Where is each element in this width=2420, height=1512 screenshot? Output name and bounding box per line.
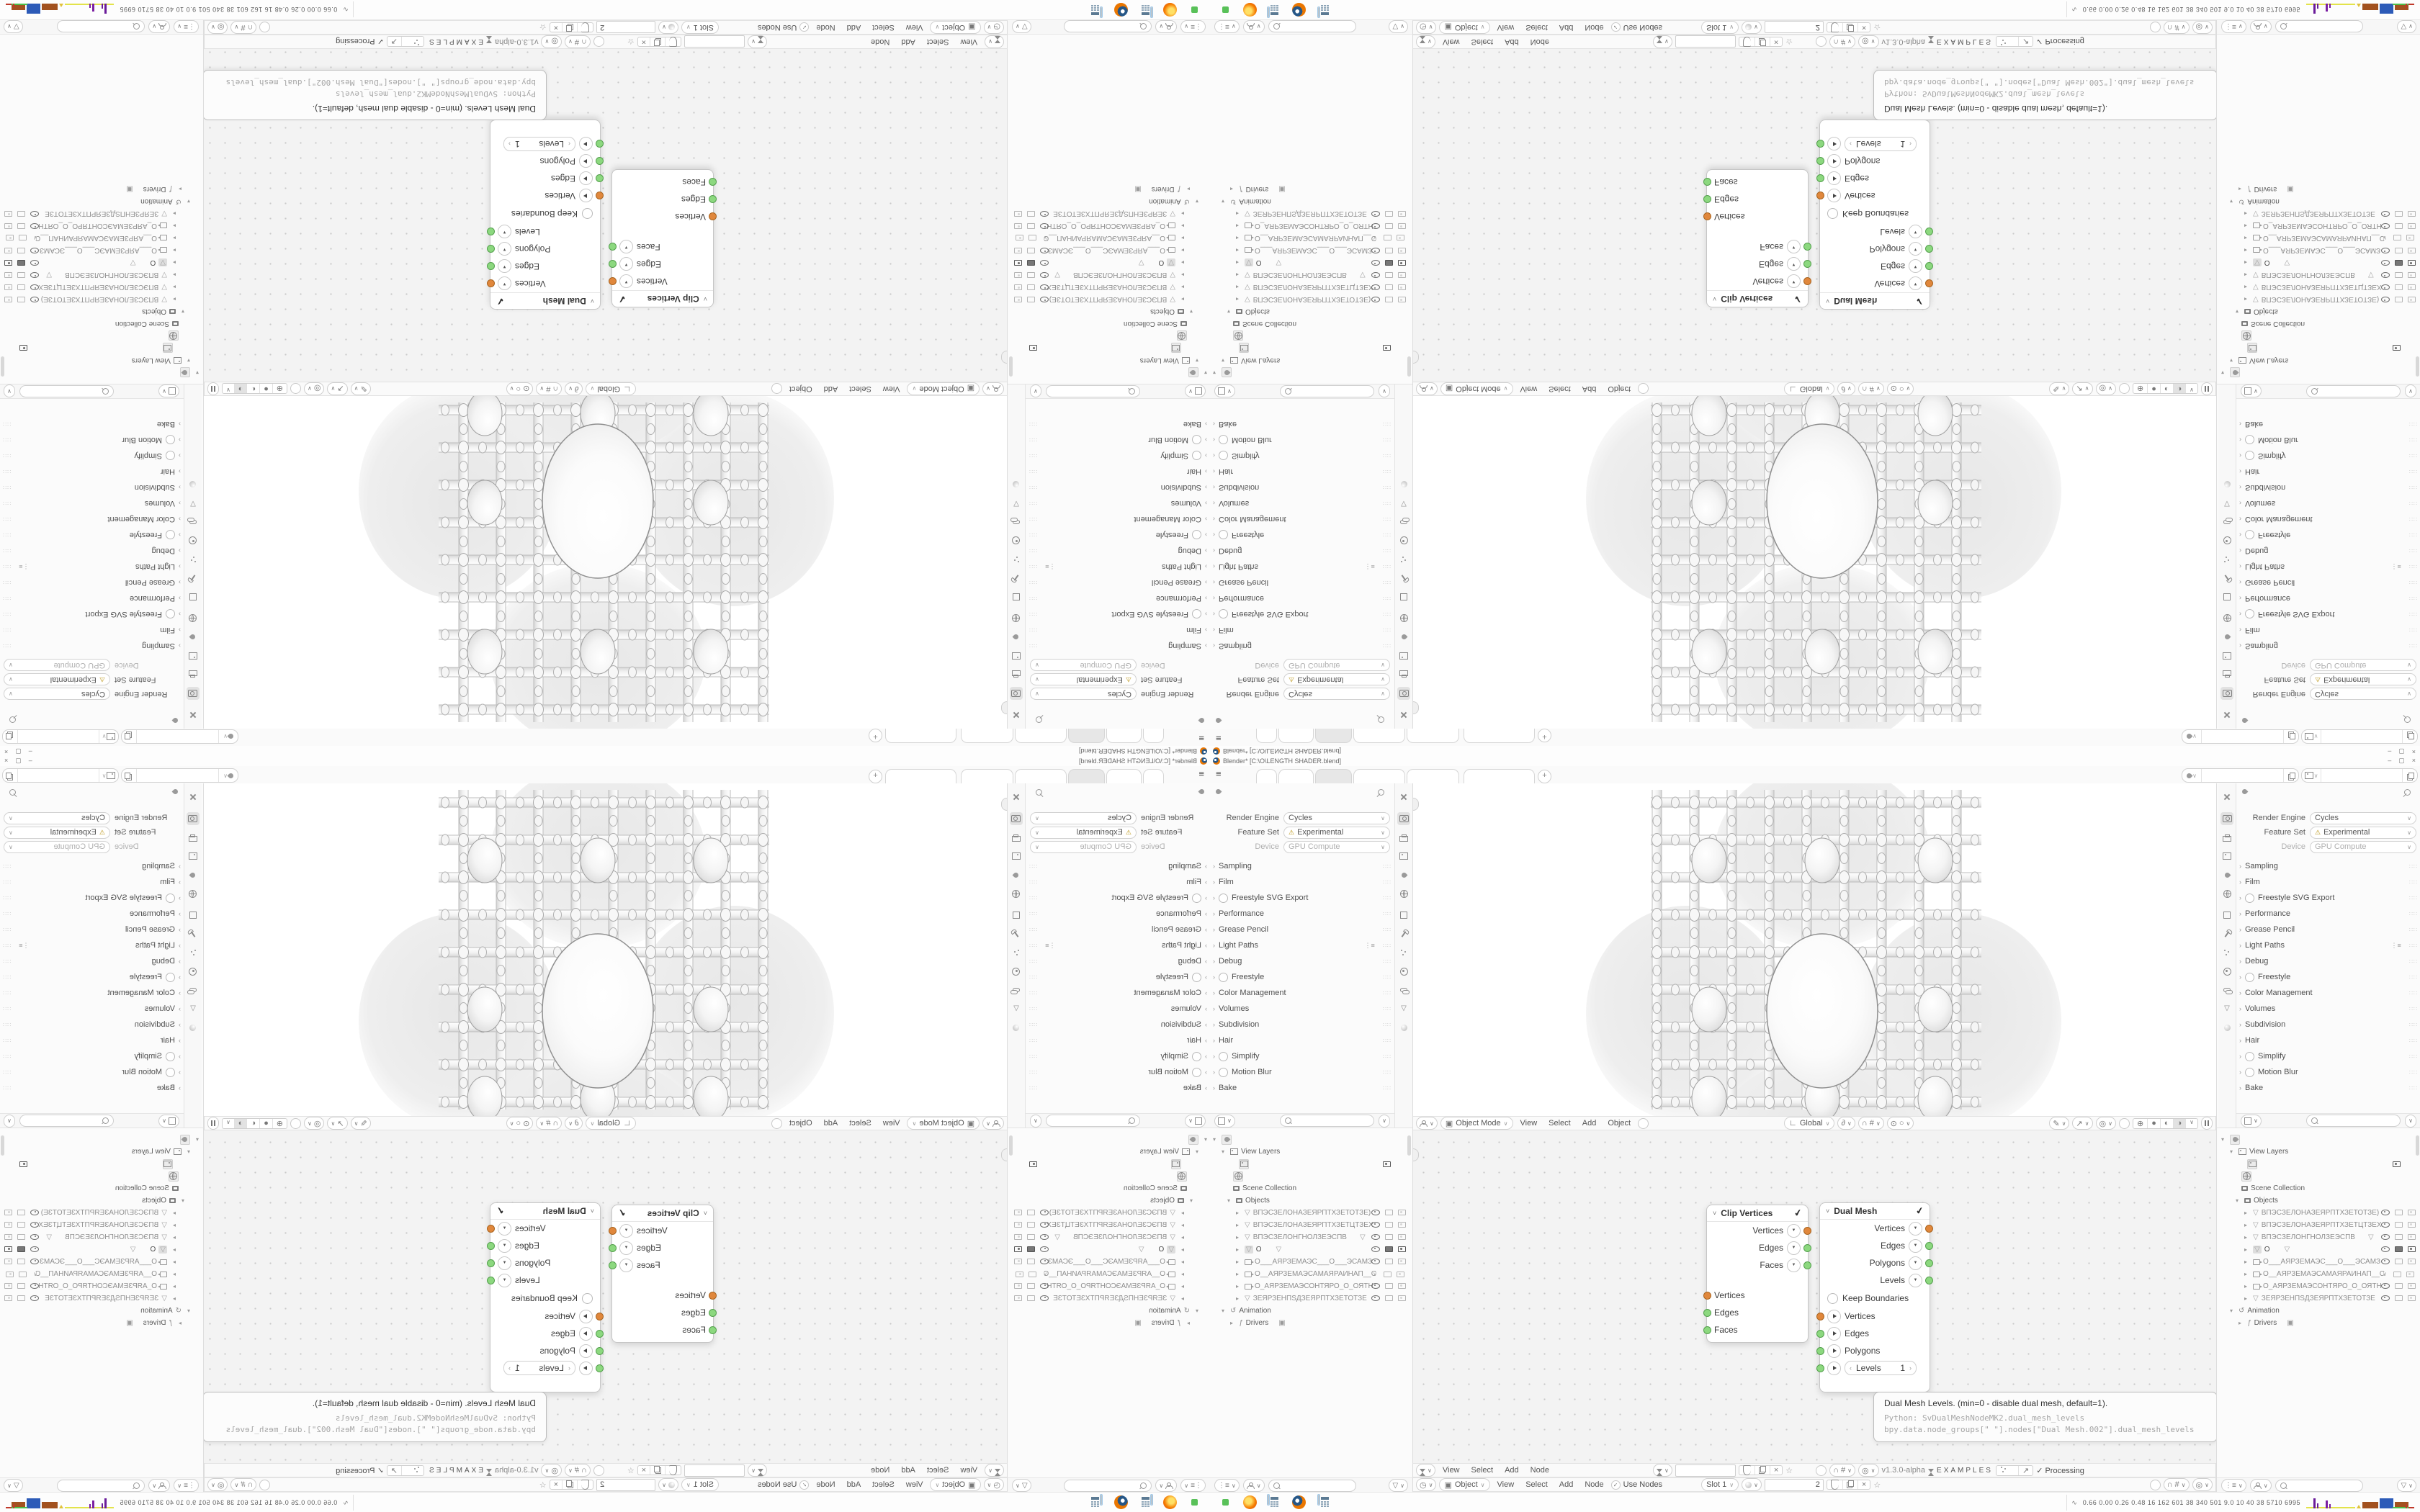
tab-render-icon[interactable] [187, 687, 200, 700]
preset-icon[interactable]: ⋮≡ [1045, 563, 1055, 571]
section-motion-blur[interactable]: ›Motion Blur∷∷ [1028, 1066, 1207, 1079]
tab-physics-icon[interactable] [2220, 965, 2233, 978]
input-socket-levels[interactable] [596, 1364, 604, 1372]
viewport-toggle-icon[interactable] [1385, 223, 1393, 229]
drag-grip-icon[interactable]: ∷∷ [2, 1085, 11, 1092]
object-row[interactable]: ▸▽ЗЕЯРЗЕНПЅДЗЕЯРПТХЗЕТОТЗЕ [2244, 208, 2375, 219]
editor-type-button[interactable]: ◷∨ [1416, 21, 1436, 34]
objects-collection-row[interactable]: ▾Objects [1150, 306, 1193, 317]
viewport-toggle-icon[interactable] [2395, 284, 2403, 290]
workspace-tab-5[interactable] [961, 729, 1013, 743]
animation-row[interactable]: ▾↺Animation [140, 1305, 190, 1316]
sidebar-handle[interactable] [1001, 1148, 1007, 1161]
checkbox[interactable] [2245, 1052, 2254, 1061]
overlap-button[interactable]: ◎∨ [2192, 1478, 2213, 1491]
render-toggle-icon[interactable] [1398, 223, 1406, 229]
copy-button[interactable] [650, 37, 665, 46]
cursor-button[interactable]: ↗ [2019, 37, 2033, 47]
object-row[interactable]: ▸▽ВПЭСЗЕЛОНАЗЕЯРПТХЗЕТОТЗЕ) [1236, 1207, 1371, 1218]
viewport-3d[interactable] [1412, 396, 2218, 729]
socket-menu-button[interactable]: ▼ [1787, 240, 1801, 254]
checkbox[interactable] [1219, 531, 1228, 540]
filter-type-dropdown[interactable]: ∨ [1243, 1479, 1265, 1492]
eye-closed-icon[interactable]: ∨ [1371, 1271, 1379, 1277]
workspace-tab-1[interactable] [1256, 769, 1277, 783]
section-freestyle[interactable]: ›Freestyle∷∷ [1028, 528, 1207, 541]
annotation-circle-button[interactable] [771, 1118, 782, 1129]
unlink-button[interactable]: × [1770, 37, 1782, 46]
section-performance[interactable]: ›Performance∷∷ [2239, 907, 2418, 920]
tab-data-icon[interactable]: ▽ [2220, 497, 2233, 510]
scene-collection-row[interactable]: Scene Collection [1233, 1183, 1296, 1194]
copy-icon[interactable] [126, 773, 132, 779]
material-preview-button[interactable]: ∨ [1742, 21, 1762, 34]
drag-grip-icon[interactable]: ∷∷ [1028, 990, 1037, 996]
render-toggle-icon[interactable] [1014, 1234, 1022, 1240]
input-socket-faces[interactable] [709, 178, 717, 186]
objects-collection-row[interactable]: ▾Objects [2236, 1195, 2278, 1206]
object-row[interactable]: ▸▽ВПЭСЗЕЛОНГНОЛЗЕЭСПВ▽ [46, 1232, 176, 1243]
overlays-button[interactable]: ◎∨ [2096, 382, 2116, 395]
viewport-toggle-icon[interactable] [1384, 235, 1391, 241]
drag-grip-icon[interactable]: ∷∷ [2409, 643, 2418, 649]
xray-circle-button[interactable] [2119, 384, 2130, 395]
display-mode-dropdown[interactable]: ⋮≡∨ [1214, 1479, 1240, 1492]
menu-select[interactable]: Select [845, 1119, 876, 1128]
outliner-search-input[interactable] [1064, 1480, 1152, 1492]
object-row[interactable]: ▸▽ВПЭСЗЕЛОНАЗЕЯРПТХЗЕТЦТЗЕХ [2244, 1220, 2382, 1230]
filter-button[interactable]: ▽∨ [1389, 1479, 1408, 1492]
pin-star-icon[interactable]: ☆ [627, 37, 635, 47]
viewport-toggle-icon[interactable] [1027, 1246, 1035, 1252]
section-film[interactable]: ›Film∷∷ [2239, 876, 2418, 888]
window-titlebar[interactable]: Blender* [C:\O\LENGTH SHADER.blend] – ▢ … [0, 756, 1210, 766]
viewport-toggle-icon[interactable] [2395, 1234, 2403, 1240]
checkbox[interactable] [1219, 1068, 1228, 1077]
editor-type-button[interactable]: ∨ [1416, 1464, 1435, 1477]
calculator-icon-2[interactable] [1101, 1495, 1102, 1505]
drag-grip-icon[interactable]: ∷∷ [1028, 942, 1037, 949]
shading-solid-button[interactable]: ● [2148, 384, 2161, 394]
world-row[interactable] [1177, 1171, 1187, 1182]
drag-grip-icon[interactable]: ∷∷ [2409, 1085, 2418, 1092]
viewport-toggle-icon[interactable] [1027, 1234, 1035, 1240]
section-film[interactable]: ›Film∷∷ [2, 624, 181, 636]
section-performance[interactable]: ›Performance∷∷ [1028, 592, 1207, 605]
feature-set-dropdown[interactable]: ⚠Experimental∨ [1030, 674, 1137, 686]
checkbox[interactable] [1192, 1068, 1201, 1077]
node-header[interactable]: ˅Clip Vertices✔ [1707, 1205, 1808, 1222]
object-row[interactable]: ▸О__АЯРЗЕМАЭСАМАЯРАИНАП__С [35, 233, 176, 243]
eye-toggle-icon[interactable] [2381, 1246, 2390, 1252]
viewport-toggle-icon[interactable] [17, 1259, 25, 1264]
checkbox[interactable] [1192, 1052, 1201, 1061]
menu-object[interactable]: Object [785, 1119, 817, 1128]
workspace-tab-1[interactable] [1143, 769, 1164, 783]
workspace-tab-6[interactable] [885, 769, 956, 783]
tree-select-button[interactable]: ∨ [1653, 1464, 1672, 1477]
render-engine-dropdown[interactable]: Cycles∨ [4, 812, 110, 824]
world-row[interactable] [1177, 330, 1187, 341]
checkbox[interactable] [1219, 436, 1228, 445]
section-film[interactable]: ›Film∷∷ [2239, 624, 2418, 636]
input-socket-faces[interactable] [1703, 1326, 1711, 1334]
socket-menu-button[interactable]: ▼ [1909, 1274, 1922, 1287]
options-button[interactable]: ∨ [1379, 385, 1390, 398]
object-row[interactable]: ▸О__АЯРЗЕМАЭСАМАЯРАИНАП__С [1044, 233, 1184, 243]
mode-dropdown[interactable]: ▣Object Mode∨ [907, 1117, 980, 1130]
drag-grip-icon[interactable]: ∷∷ [1383, 453, 1391, 459]
filter-button[interactable]: ▽∨ [2397, 1479, 2416, 1492]
gizmo-button[interactable]: ↗∨ [2072, 382, 2092, 395]
tab-scene-icon[interactable] [2220, 631, 2233, 644]
viewport-toggle-icon[interactable] [17, 1246, 25, 1252]
node-clip-vertices[interactable]: ˅Clip Vertices✔ Vertices▼ Edges▼ Faces▼ … [611, 169, 714, 307]
shader-type-dropdown[interactable]: ▣Object∨ [930, 21, 980, 34]
section-sampling[interactable]: ›Sampling∷∷ [2, 860, 181, 873]
calculator-icon[interactable] [1151, 1495, 1152, 1505]
filter-type-dropdown[interactable]: ∨ [2250, 1479, 2272, 1492]
bake-button[interactable] [1996, 1466, 2019, 1475]
copy-icon[interactable] [2407, 734, 2413, 740]
overlap-button[interactable]: ◎∨ [542, 35, 562, 48]
section-freestyle[interactable]: ›Freestyle∷∷ [1028, 971, 1207, 984]
viewport-toggle-icon[interactable] [17, 248, 25, 253]
calculator-icon[interactable] [1268, 7, 1269, 17]
section-light-paths[interactable]: ›Light Paths⋮≡∷∷ [1028, 939, 1207, 952]
processing-check[interactable]: ✓ Processing [336, 37, 384, 47]
input-socket-vertices[interactable] [1816, 192, 1824, 199]
display-mode-button[interactable]: ∨ [158, 385, 179, 398]
drag-grip-icon[interactable]: ∷∷ [2, 548, 11, 554]
eye-toggle-icon[interactable] [30, 223, 39, 229]
circle-button[interactable] [1816, 1465, 1827, 1476]
drag-grip-icon[interactable]: ∷∷ [1383, 548, 1391, 554]
object-row[interactable]: ▸▽ВПЭСЗЕЛОНАЗЕЯРПТХЗЕТОТЗЕ) [1236, 294, 1371, 305]
levels-stepper[interactable]: ‹Levels1› [1845, 137, 1917, 151]
levels-stepper[interactable]: ‹Levels1› [503, 1361, 575, 1375]
pin-star-icon[interactable]: ☆ [539, 23, 547, 32]
socket-menu-button[interactable]: ▼ [1909, 260, 1922, 274]
socket-plug-button[interactable] [579, 1310, 593, 1323]
drag-grip-icon[interactable]: ∷∷ [1028, 453, 1037, 459]
render-toggle-icon[interactable] [4, 272, 12, 278]
render-engine-dropdown[interactable]: Cycles∨ [1030, 812, 1137, 824]
hamburger-menu-icon[interactable]: ≡ [1198, 768, 1204, 779]
viewport-toggle-icon[interactable] [19, 1272, 27, 1277]
input-socket-levels[interactable] [1816, 1364, 1824, 1372]
bake-button[interactable] [401, 37, 423, 47]
viewport-toggle-icon[interactable] [17, 1210, 25, 1215]
camera-toggle-icon[interactable] [1383, 345, 1391, 351]
filter-button[interactable]: ▽∨ [1012, 20, 1031, 33]
circle-button[interactable] [1816, 37, 1827, 48]
tab-output-icon[interactable] [1010, 668, 1023, 681]
tab-constraints-icon[interactable] [1397, 984, 1410, 996]
eye-toggle-icon[interactable] [1371, 223, 1380, 229]
snapping-button[interactable]: ∩#∨ [536, 382, 562, 395]
options-button[interactable]: ∨ [1030, 1115, 1041, 1128]
shader-type-dropdown[interactable]: ▣Object∨ [1439, 1478, 1489, 1491]
menu-add[interactable]: Add [1500, 1466, 1523, 1475]
circle-button[interactable] [259, 1480, 270, 1490]
section-freestyle-svg[interactable]: ›Freestyle SVG Export∷∷ [1028, 891, 1207, 904]
output-socket-edges[interactable] [1925, 262, 1933, 270]
hamburger-menu-icon[interactable]: ≡ [1216, 768, 1222, 779]
drag-grip-icon[interactable]: ∷∷ [2409, 895, 2418, 901]
output-socket-vertices[interactable] [609, 277, 617, 285]
section-grease-pencil[interactable]: ›Grease Pencil∷∷ [2, 923, 181, 936]
drag-grip-icon[interactable]: ∷∷ [1383, 974, 1391, 981]
tab-data-icon[interactable]: ▽ [1397, 1002, 1410, 1015]
viewport-toggle-icon[interactable] [17, 1222, 25, 1228]
filter-button[interactable]: ▽∨ [4, 1479, 23, 1492]
pin-star-icon[interactable]: ☆ [1785, 1466, 1793, 1475]
output-socket-levels[interactable] [487, 1277, 495, 1284]
snapping-button[interactable]: ∩#∨ [1858, 382, 1884, 395]
editor-type-button[interactable]: ∨ [985, 1464, 1004, 1477]
drag-grip-icon[interactable]: ∷∷ [1028, 911, 1037, 917]
viewport-toggle-icon[interactable] [17, 272, 25, 278]
menu-view[interactable]: View [1493, 1480, 1519, 1489]
menu-add[interactable]: Add [843, 1480, 866, 1489]
eye-toggle-icon[interactable] [1371, 297, 1380, 302]
firefox-icon[interactable] [1243, 1495, 1257, 1509]
preset-icon[interactable]: ⋮≡ [19, 563, 29, 571]
menu-node[interactable]: Node [1580, 23, 1608, 32]
eye-toggle-icon[interactable] [1371, 1259, 1380, 1264]
viewport-toggle-icon[interactable] [1027, 211, 1035, 217]
viewport-toggle-icon[interactable] [1027, 1295, 1035, 1301]
pin-icon[interactable] [9, 789, 16, 796]
shading-dropdown[interactable]: ∨ [223, 1119, 234, 1128]
render-toggle-icon[interactable] [1398, 248, 1406, 253]
shading-material-button[interactable]: ◐ [2161, 384, 2174, 394]
pin-star-icon[interactable]: ☆ [1873, 23, 1881, 32]
fake-user-shield-button[interactable] [665, 1466, 681, 1475]
drag-grip-icon[interactable]: ∷∷ [1028, 580, 1037, 586]
view-layer-item-row[interactable] [163, 1158, 173, 1169]
workspace-tab-3-active[interactable] [1315, 769, 1352, 783]
drag-grip-icon[interactable]: ∷∷ [2, 1053, 11, 1060]
calculator-icon-2[interactable] [1318, 1495, 1319, 1505]
object-row[interactable]: ▸▽ЗЕЯРЗЕНПЅДЗЕЯРПТХЗЕТОТЗЕ [45, 1293, 176, 1304]
fake-user-shield-button[interactable] [1827, 1480, 1843, 1489]
pivot-point-button[interactable]: ∂∨ [565, 382, 582, 395]
tab-scene-icon[interactable] [1397, 868, 1410, 881]
overlays-button[interactable]: ◎∨ [2096, 1117, 2116, 1130]
tab-view-layer-icon[interactable] [187, 649, 200, 662]
eye-toggle-icon[interactable] [1371, 211, 1380, 217]
checkbox[interactable] [2245, 436, 2254, 445]
eye-toggle-icon[interactable] [2381, 211, 2390, 217]
section-bake[interactable]: ›Bake∷∷ [2, 1081, 181, 1094]
display-mode-button[interactable]: ∨ [1214, 1115, 1235, 1128]
camera-toggle-icon[interactable] [1029, 1161, 1037, 1167]
object-row[interactable]: ▸▽ВПЭСЗЕЛОНАЗЕЯРПТХЗЕТОТЗЕ) [1049, 1207, 1184, 1218]
tab-particles-icon[interactable] [1397, 946, 1410, 959]
display-mode-dropdown[interactable]: ⋮≡∨ [1180, 20, 1206, 33]
node-header[interactable]: ˅Dual Mesh✔ [490, 1203, 600, 1220]
section-performance[interactable]: ›Performance∷∷ [1213, 907, 1391, 920]
input-socket-polygons[interactable] [1816, 157, 1824, 165]
eye-toggle-icon[interactable] [2381, 223, 2390, 229]
tab-object-icon[interactable] [187, 909, 200, 922]
eye-toggle-icon[interactable] [30, 1210, 39, 1215]
socket-plug-button[interactable] [579, 155, 593, 168]
render-toggle-icon[interactable] [4, 248, 12, 253]
eye-toggle-icon[interactable] [1040, 1283, 1049, 1289]
checkbox[interactable] [166, 531, 175, 540]
viewport-toggle-icon[interactable] [2395, 211, 2403, 217]
firefox-icon[interactable] [1163, 3, 1177, 17]
gizmo-button[interactable]: ↗∨ [328, 382, 348, 395]
input-socket-polygons[interactable] [1816, 1347, 1824, 1355]
drag-grip-icon[interactable]: ∷∷ [2409, 1038, 2418, 1044]
snapping-button[interactable]: ∩#∨ [2164, 1478, 2190, 1491]
menu-add[interactable]: Add [1578, 384, 1601, 393]
view-layers-row[interactable]: ▾View Layers [1222, 355, 1280, 366]
search-input[interactable] [1280, 385, 1374, 397]
slot-dropdown[interactable]: Slot 1∨ [1701, 21, 1739, 34]
tab-view-layer-icon[interactable] [187, 850, 200, 863]
node-tree-name-field[interactable] [1675, 36, 1736, 48]
workspace-tab-5[interactable] [961, 769, 1013, 783]
render-toggle-icon[interactable] [1014, 1259, 1022, 1264]
output-socket-levels[interactable] [487, 228, 495, 235]
render-toggle-icon[interactable] [4, 284, 12, 290]
output-socket-polygons[interactable] [1925, 245, 1933, 253]
animation-row[interactable]: ▾↺Animation [1149, 1305, 1198, 1316]
tab-view-layer-icon[interactable] [1397, 649, 1410, 662]
tab-view-layer-icon[interactable] [1010, 649, 1023, 662]
drag-grip-icon[interactable]: ∷∷ [1028, 595, 1037, 602]
keep-boundaries-checkbox[interactable] [1827, 209, 1838, 220]
section-debug[interactable]: ›Debug∷∷ [2239, 955, 2418, 968]
tab-particles-icon[interactable] [2220, 553, 2233, 566]
drag-grip-icon[interactable]: ∷∷ [1028, 1038, 1037, 1044]
viewport-3d[interactable] [1412, 783, 2218, 1116]
menu-select[interactable]: Select [868, 23, 899, 32]
input-socket-vertices[interactable] [1703, 212, 1711, 220]
drag-grip-icon[interactable]: ∷∷ [1028, 421, 1037, 428]
annotation-circle-button[interactable] [1638, 384, 1649, 395]
tab-particles-icon[interactable] [1397, 553, 1410, 566]
tab-material-icon[interactable] [1010, 478, 1023, 491]
object-row-selected[interactable]: ▸▽O▽ [1139, 1244, 1184, 1255]
object-row[interactable]: ▸О_АЯРЗЕМАЭСОНТЯРО_О_ОЯТН [2244, 220, 2382, 231]
object-row-selected[interactable]: ▸▽O▽ [130, 1244, 176, 1255]
section-volumes[interactable]: ›Volumes∷∷ [2, 497, 181, 510]
tab-object-icon[interactable] [1397, 590, 1410, 603]
drivers-row[interactable]: ▸ƒDrivers▣ [126, 1318, 181, 1328]
tab-constraints-icon[interactable] [1010, 516, 1023, 528]
feature-set-dropdown[interactable]: ⚠Experimental∨ [1283, 674, 1390, 686]
socket-menu-button[interactable]: ▼ [498, 1222, 511, 1236]
outliner-search-input[interactable] [1064, 21, 1152, 33]
drag-grip-icon[interactable]: ∷∷ [1028, 895, 1037, 901]
animation-row[interactable]: ▾↺Animation [1149, 196, 1198, 207]
viewport-toggle-icon[interactable] [2395, 1222, 2403, 1228]
animation-row[interactable]: ▾↺Animation [2230, 196, 2280, 207]
workspace-tab-2[interactable] [1106, 729, 1142, 743]
tab-render-icon[interactable] [2220, 687, 2233, 700]
object-row[interactable]: ▸О__АЯРЗЕМАЭСАМАЯРАИНАП__С [1236, 1269, 1376, 1279]
use-nodes-checkbox[interactable]: ✓Use Nodes [1611, 23, 1662, 32]
editor-type-button[interactable]: ∨ [1416, 1117, 1438, 1130]
firefox-icon[interactable] [1163, 1495, 1177, 1509]
section-hair[interactable]: ›Hair∷∷ [2, 465, 181, 478]
section-freestyle[interactable]: ›Freestyle∷∷ [2239, 528, 2418, 541]
render-toggle-icon[interactable] [2408, 284, 2416, 290]
tab-world-icon[interactable] [2220, 887, 2233, 900]
shading-material-button[interactable]: ◐ [2161, 1119, 2174, 1128]
device-dropdown[interactable]: GPU Compute∨ [1283, 660, 1390, 672]
material-name-field[interactable]: 2 [1765, 22, 1824, 34]
eye-toggle-icon[interactable] [1371, 248, 1380, 253]
sverchok-node-editor[interactable]: ˅Clip Vertices✔ Vertices▼ Edges▼ Faces▼ … [202, 49, 1008, 382]
checkbox[interactable] [2245, 531, 2254, 540]
socket-menu-button[interactable]: ▼ [498, 260, 511, 274]
keep-boundaries-checkbox[interactable] [582, 1293, 593, 1304]
node-dual-mesh[interactable]: ˅Dual Mesh✔ Vertices▼ Edges▼ Polygons▼ L… [1819, 120, 1930, 310]
shading-rendered-button[interactable]: ◑ [2174, 384, 2187, 394]
processing-check[interactable]: ✓ Processing [2036, 1466, 2084, 1475]
eye-toggle-icon[interactable] [1040, 1295, 1049, 1301]
drag-grip-icon[interactable]: ∷∷ [2409, 548, 2418, 554]
drag-grip-icon[interactable]: ∷∷ [2409, 485, 2418, 491]
drag-grip-icon[interactable]: ∷∷ [1383, 1069, 1391, 1076]
camera-toggle-icon[interactable] [19, 1161, 27, 1167]
tab-data-icon[interactable]: ▽ [1397, 497, 1410, 510]
tab-modifiers-icon[interactable] [187, 927, 200, 940]
object-row[interactable]: ▸О__АЯРЗЕМАЭСАМАЯРАИНАП__С [35, 1269, 176, 1279]
proportional-edit-button[interactable]: ⊙○∨ [1887, 382, 1914, 395]
node-clip-vertices[interactable]: ˅Clip Vertices✔ Vertices▼ Edges▼ Faces▼ … [611, 1205, 714, 1343]
outliner-root-row[interactable]: ▾ [2221, 1134, 2240, 1145]
feature-set-dropdown[interactable]: ⚠Experimental∨ [1030, 827, 1137, 839]
keep-boundaries-row[interactable]: Keep Boundaries [490, 1289, 600, 1308]
device-dropdown[interactable]: GPU Compute∨ [2310, 841, 2416, 853]
camera-toggle-icon[interactable] [1383, 1161, 1391, 1167]
copy-button[interactable] [562, 1480, 577, 1489]
scene-selector[interactable]: ∨ [2182, 729, 2299, 744]
tab-physics-icon[interactable] [1010, 965, 1023, 978]
menu-select[interactable]: Select [868, 1480, 899, 1489]
render-toggle-icon[interactable] [1398, 297, 1406, 302]
render-toggle-icon[interactable] [4, 211, 12, 217]
section-subdivision[interactable]: ›Subdivision∷∷ [1213, 1018, 1391, 1031]
objects-collection-row[interactable]: ▾Objects [142, 1195, 184, 1206]
snapping-button[interactable]: ∩#∨ [230, 21, 256, 34]
socket-menu-button[interactable]: ▼ [1909, 1256, 1922, 1270]
fake-user-shield-button[interactable] [1739, 37, 1755, 46]
preset-icon[interactable]: ⋮≡ [2391, 942, 2401, 950]
pause-render-button[interactable] [207, 1117, 219, 1130]
output-socket-polygons[interactable] [487, 1259, 495, 1267]
drag-grip-icon[interactable]: ∷∷ [1383, 611, 1391, 618]
filter-button[interactable]: ▽∨ [2397, 20, 2416, 33]
input-socket-edges[interactable] [1816, 1330, 1824, 1338]
input-socket-vertices[interactable] [1816, 1313, 1824, 1320]
drivers-row[interactable]: ▸ƒDrivers▣ [2238, 1318, 2294, 1328]
object-row[interactable]: ▸▽ВПЭСЗЕЛОНАЗЕЯРПТХЗЕТОТЗЕ) [41, 294, 176, 305]
workspace-tab-3-active[interactable] [1315, 729, 1352, 743]
copy-icon[interactable] [2407, 773, 2413, 779]
section-debug[interactable]: ›Debug∷∷ [1213, 544, 1391, 557]
options-button[interactable]: ∨ [1379, 1115, 1390, 1128]
xray-circle-button[interactable] [290, 384, 301, 395]
